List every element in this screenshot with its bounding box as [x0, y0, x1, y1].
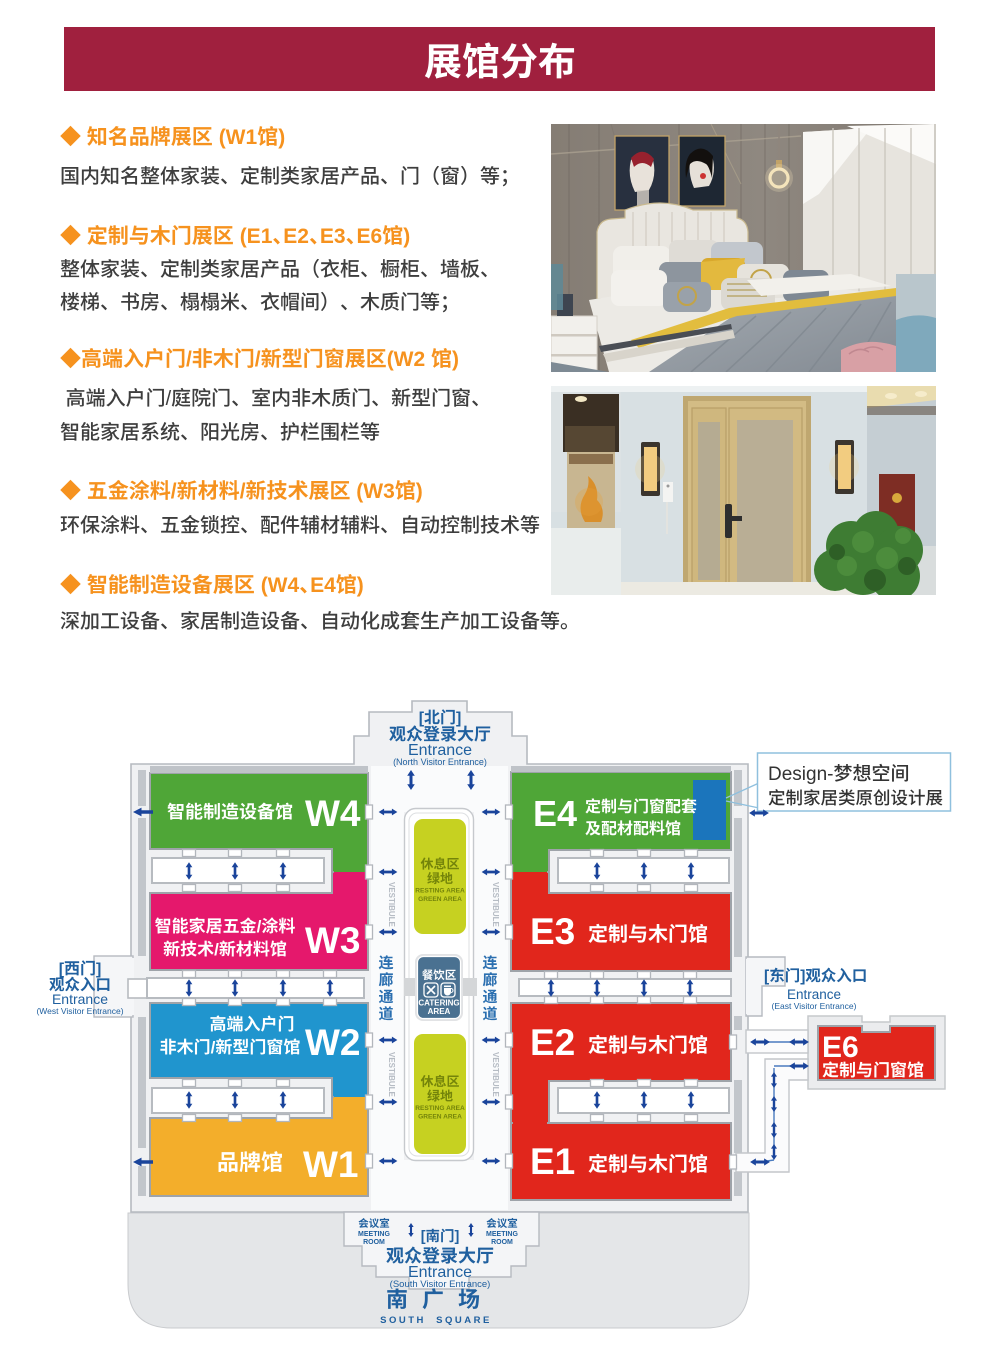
svg-text:E6: E6	[822, 1031, 859, 1064]
svg-text:Entrance: Entrance	[52, 991, 108, 1007]
svg-text:): )	[403, 225, 410, 248]
svg-text:[: [	[421, 1229, 426, 1245]
svg-text:E1: E1	[530, 1141, 575, 1182]
svg-text:E2: E2	[530, 1022, 575, 1063]
svg-text:]: ]	[455, 1229, 460, 1245]
svg-text:Entrance: Entrance	[787, 987, 841, 1002]
svg-text:E4: E4	[533, 793, 577, 834]
svg-text:ROOM: ROOM	[491, 1239, 513, 1246]
svg-text:[: [	[59, 961, 65, 978]
svg-text:[: [	[419, 710, 425, 727]
svg-text:(E1: (E1	[240, 225, 273, 248]
svg-text:VESTIBULE: VESTIBULE	[387, 882, 396, 928]
svg-text:/: /	[171, 480, 177, 503]
svg-text:SOUTH SQUARE: SOUTH SQUARE	[380, 1315, 492, 1326]
svg-text:GREEN AREA: GREEN AREA	[418, 1114, 462, 1121]
svg-text:GREEN AREA: GREEN AREA	[418, 896, 462, 903]
svg-text:E3: E3	[530, 911, 575, 952]
svg-text:VESTIBULE: VESTIBULE	[387, 1052, 396, 1098]
svg-text:W3: W3	[305, 920, 361, 961]
svg-text:): )	[278, 126, 285, 149]
svg-text:[: [	[764, 968, 769, 985]
svg-text:(South Visitor Entrance): (South Visitor Entrance)	[390, 1279, 491, 1290]
svg-text:W1: W1	[303, 1144, 359, 1185]
svg-text:E3: E3	[320, 225, 346, 248]
svg-text:(W2: (W2	[387, 348, 426, 371]
svg-text:RESTING AREA: RESTING AREA	[415, 1105, 465, 1112]
svg-text:(W3: (W3	[356, 480, 395, 503]
svg-text:]: ]	[456, 710, 461, 727]
svg-text:W4: W4	[305, 793, 361, 834]
svg-text:(West Visitor Entrance): (West Visitor Entrance)	[36, 1006, 123, 1016]
svg-text:): )	[357, 574, 364, 597]
svg-text:]: ]	[800, 968, 805, 985]
svg-text:): )	[452, 348, 459, 371]
svg-text:ROOM: ROOM	[363, 1239, 385, 1246]
svg-text:Design-: Design-	[768, 764, 833, 785]
svg-text:RESTING AREA: RESTING AREA	[415, 888, 465, 895]
svg-text:/: /	[186, 348, 192, 371]
svg-text:]: ]	[96, 961, 101, 978]
svg-text:W2: W2	[305, 1022, 361, 1063]
svg-text:VESTIBULE: VESTIBULE	[491, 882, 500, 928]
svg-text:/: /	[255, 348, 261, 371]
svg-text:): )	[416, 480, 423, 503]
svg-text:(W1: (W1	[219, 126, 258, 149]
svg-text:E6: E6	[357, 225, 383, 248]
svg-text:(North Visitor Entrance): (North Visitor Entrance)	[393, 757, 487, 767]
svg-text:MEETING: MEETING	[486, 1231, 518, 1238]
svg-text:/: /	[214, 940, 219, 959]
svg-text:/: /	[257, 917, 262, 936]
svg-text:AREA: AREA	[428, 1007, 451, 1016]
svg-text:(W4: (W4	[261, 574, 300, 597]
svg-text:/: /	[240, 480, 246, 503]
svg-text:E4: E4	[310, 574, 336, 597]
svg-text:/: /	[166, 388, 172, 410]
svg-text:VESTIBULE: VESTIBULE	[491, 1052, 500, 1098]
svg-text:MEETING: MEETING	[358, 1231, 390, 1238]
svg-text:(East Visitor Entrance): (East Visitor Entrance)	[772, 1001, 857, 1011]
svg-text:E2: E2	[283, 225, 309, 248]
svg-text:/: /	[211, 1038, 216, 1057]
